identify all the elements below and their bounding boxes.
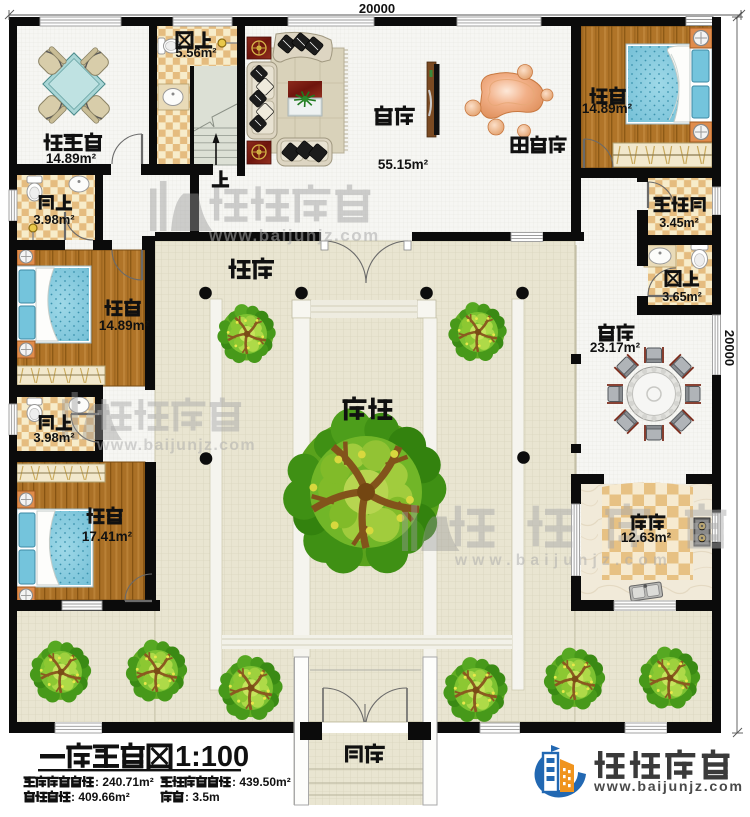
svg-text:: 240.71m²: : 240.71m²: [95, 775, 154, 789]
svg-text:20000: 20000: [722, 330, 737, 366]
svg-text:20000: 20000: [359, 1, 395, 16]
svg-text:5.56m²: 5.56m²: [175, 45, 217, 60]
svg-text:23.17m²: 23.17m²: [590, 340, 641, 355]
svg-text:14.89m²: 14.89m²: [582, 101, 633, 116]
svg-text:3.98m²: 3.98m²: [33, 212, 75, 227]
svg-text:14.89m²: 14.89m²: [46, 151, 97, 166]
svg-text:55.15m²: 55.15m²: [378, 157, 429, 172]
svg-text:3.98m²: 3.98m²: [33, 430, 75, 445]
svg-text:: 439.50m²: : 439.50m²: [232, 775, 291, 789]
svg-text:17.41m²: 17.41m²: [82, 529, 133, 544]
svg-text:: 409.66m²: : 409.66m²: [71, 790, 130, 804]
svg-text:3.45m²: 3.45m²: [659, 216, 699, 230]
svg-text:3.65m²: 3.65m²: [662, 290, 702, 304]
svg-text:1:100: 1:100: [175, 741, 249, 773]
svg-text:14.89m²: 14.89m²: [99, 318, 150, 333]
svg-text:www.baijunjz.com: www.baijunjz.com: [96, 437, 256, 454]
svg-text:12.63m²: 12.63m²: [621, 530, 672, 545]
svg-text:www.baijunjz.com: www.baijunjz.com: [208, 226, 380, 245]
svg-text:: 3.5m: : 3.5m: [185, 790, 220, 804]
svg-text:www.baijunjz.com: www.baijunjz.com: [593, 779, 744, 795]
svg-text:www.baijunjz.com: www.baijunjz.com: [454, 552, 672, 569]
